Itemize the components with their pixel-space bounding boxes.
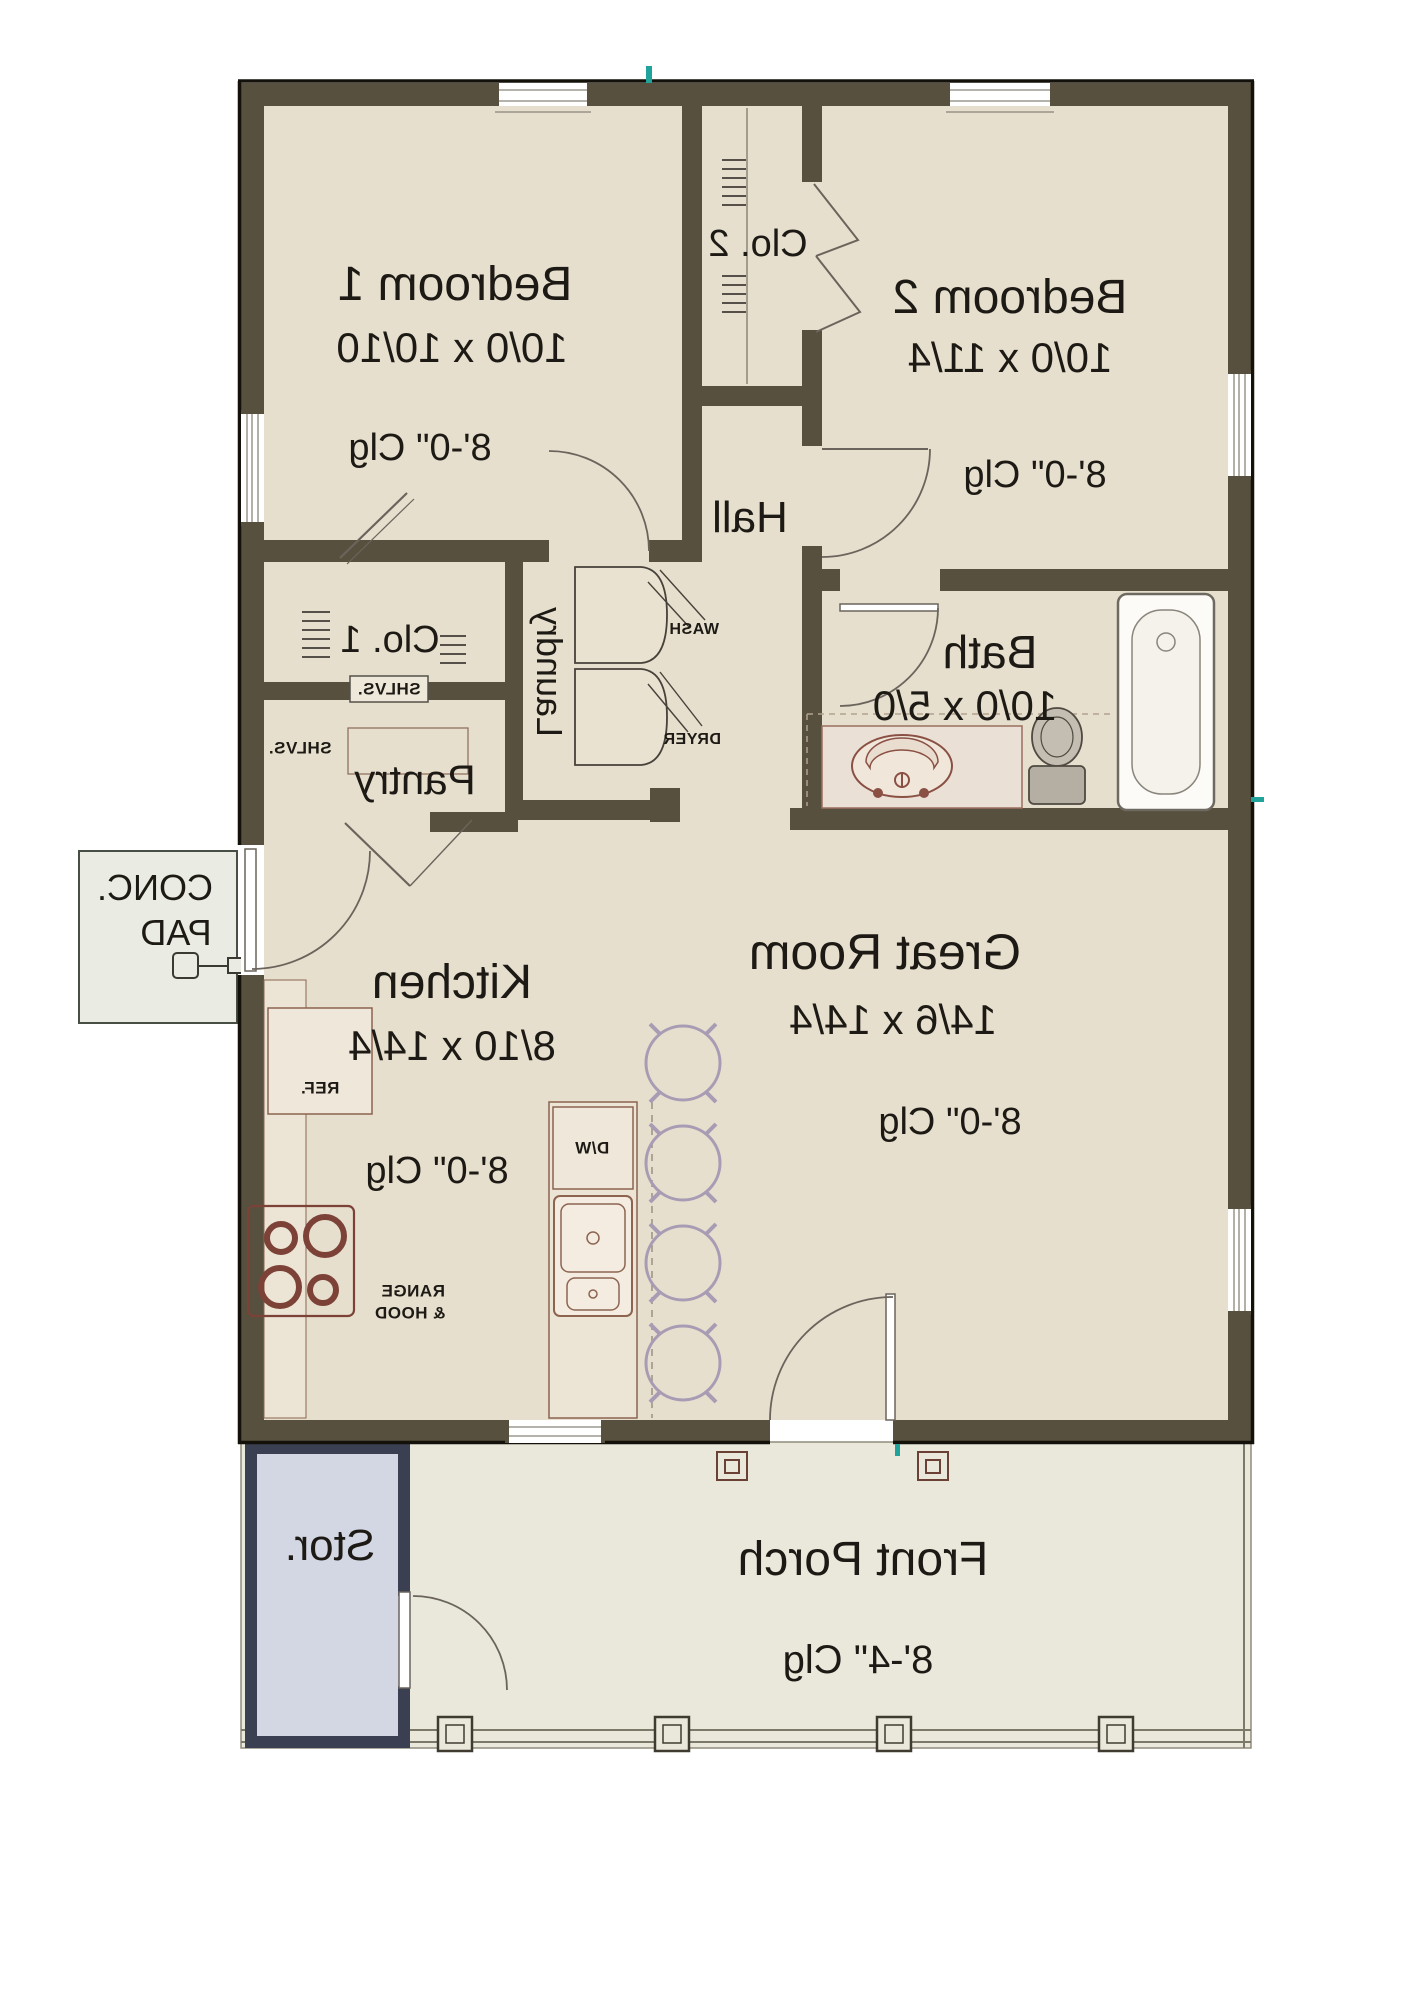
bathtub	[1118, 594, 1214, 810]
storage-door-leaf	[399, 1592, 410, 1688]
hall-name: Hall	[712, 496, 788, 540]
porch-name: Front Porch	[738, 1536, 989, 1584]
floor-plan-canvas: Bedroom 1 10/0 x 10/10 8'-0" Clg Clo. 2 …	[0, 0, 1401, 2000]
kitchen-ceiling: 8'-0" Clg	[365, 1152, 508, 1190]
conc-pad-label-1: CONC.	[97, 870, 213, 906]
bedroom2-ceiling: 8'-0" Clg	[963, 456, 1106, 494]
dryer-label: DRYER	[663, 732, 721, 748]
porch-post	[438, 1717, 472, 1751]
greatroom-dims: 14/6 x 14/4	[789, 999, 997, 1041]
washer	[575, 567, 667, 663]
kitchen-name: Kitchen	[372, 959, 532, 1007]
bedroom1-ceiling: 8'-0" Clg	[348, 429, 491, 467]
greatroom-ceiling: 8'-0" Clg	[878, 1103, 1021, 1141]
bedroom1-dims: 10/0 x 10/10	[336, 327, 567, 369]
washer-label: WASH	[669, 622, 719, 638]
outlet-icon	[228, 958, 243, 973]
bedroom2-dims: 10/0 x 11/4	[908, 337, 1113, 379]
dishwasher-label: D/W	[575, 1140, 610, 1157]
floor-plan-svg	[0, 0, 1401, 2000]
refrigerator-label: REF.	[301, 1080, 340, 1097]
kitchen-dims: 8/10 x 14/4	[348, 1025, 556, 1067]
bath-dims: 10/0 x 5/0	[873, 685, 1057, 727]
closet1-shelves-label: SHLVS.	[357, 681, 420, 698]
dryer	[575, 669, 667, 765]
greatroom-name: Great Room	[749, 927, 1021, 977]
closet2-name: Clo. 2	[708, 225, 807, 263]
pantry-name: Pantry	[354, 759, 475, 801]
pantry-shelves-label: SHLVS.	[268, 740, 331, 757]
window-bedroom1-left	[241, 410, 264, 526]
window-kitchen-bottom	[505, 1420, 605, 1443]
conc-pad-label-2: PAD	[140, 915, 211, 951]
porch-post	[655, 1717, 689, 1751]
storage-name: Stor.	[285, 1524, 376, 1568]
porch-ceiling: 8'-4" Clg	[783, 1640, 934, 1680]
closet1-name: Clo. 1	[340, 621, 439, 659]
porch-post	[1099, 1717, 1133, 1751]
range-label-1: RANGE	[381, 1283, 445, 1300]
range-label-2: & HOOD	[375, 1305, 446, 1322]
laundry-name: Laundry	[531, 607, 567, 737]
bedroom1-name: Bedroom 1	[338, 261, 573, 309]
island-sink	[554, 1196, 632, 1316]
bedroom2-name: Bedroom 2	[893, 274, 1128, 322]
bath-name: Bath	[943, 629, 1038, 675]
window-greatroom-right	[1228, 1205, 1251, 1315]
window-bedroom2-right	[1228, 370, 1251, 480]
porch-post	[877, 1717, 911, 1751]
